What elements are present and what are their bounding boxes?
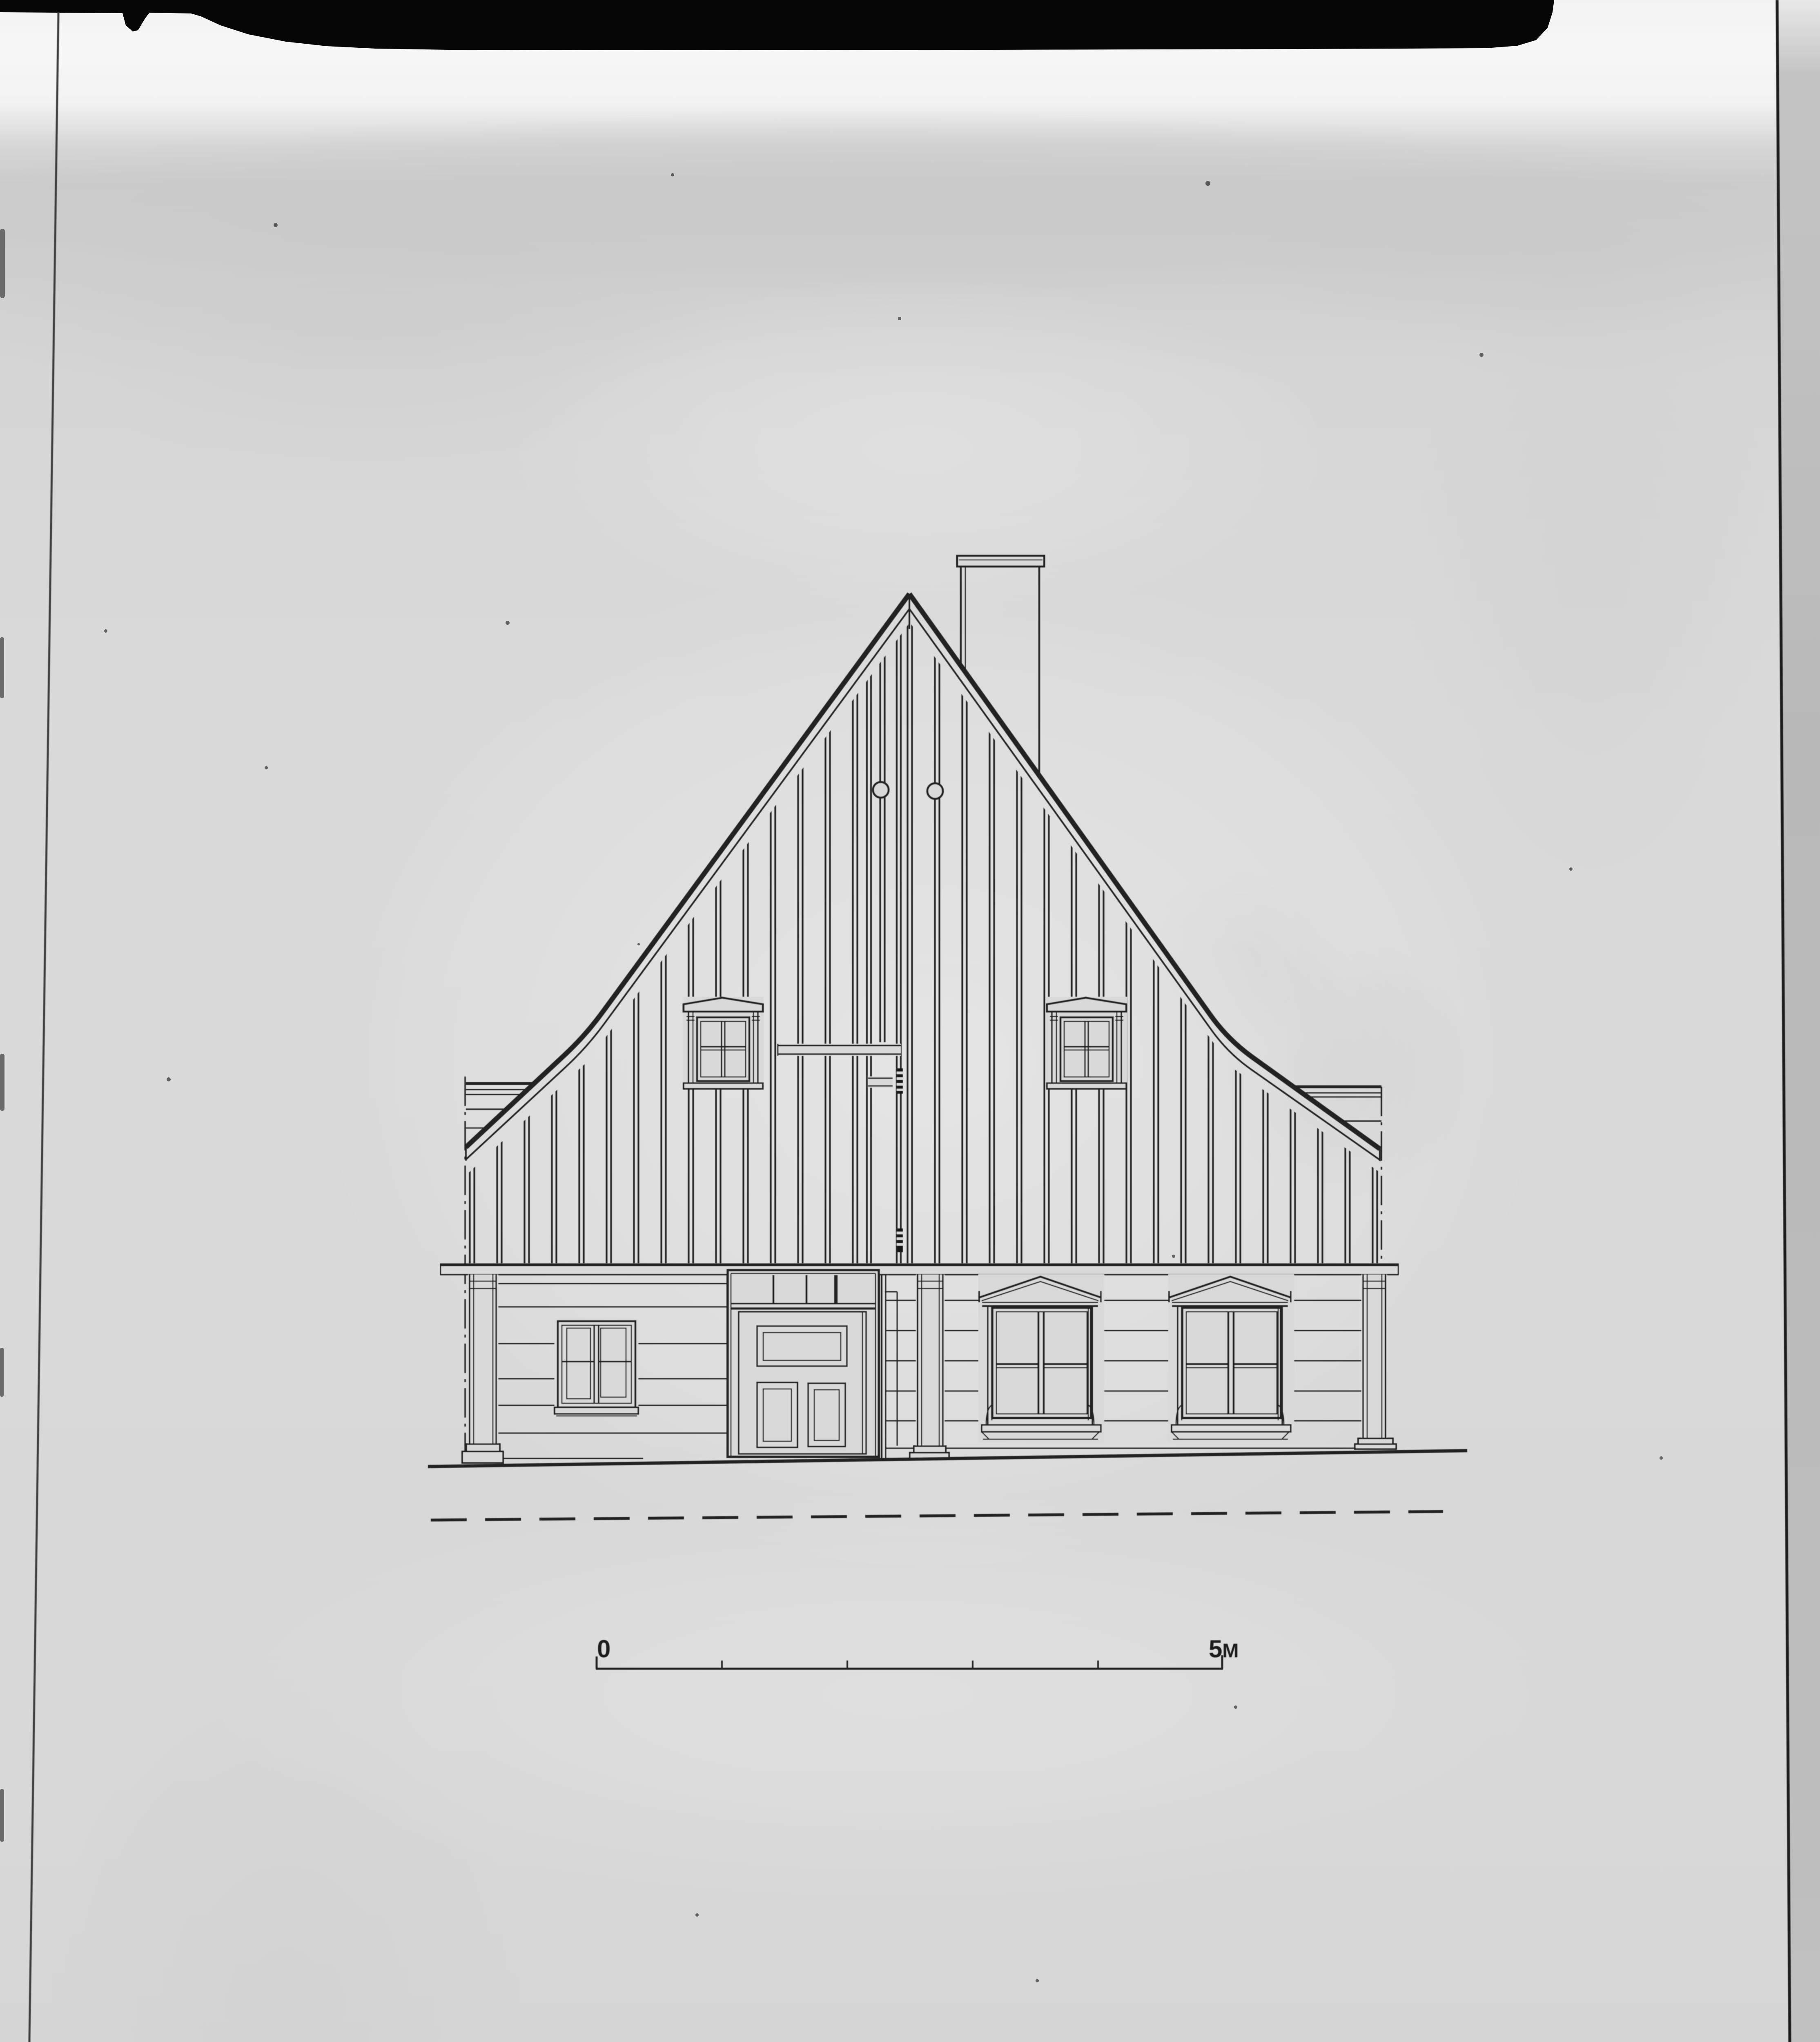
svg-text:0: 0 [597,1635,610,1663]
